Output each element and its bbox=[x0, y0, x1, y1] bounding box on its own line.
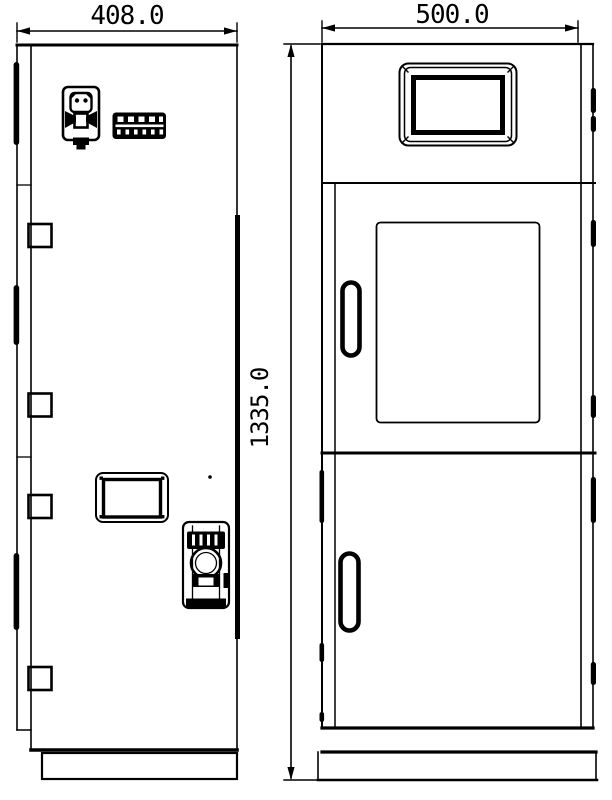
hinge-bump-icon bbox=[591, 88, 596, 113]
hinge-bump-icon bbox=[591, 116, 596, 132]
latch-icon bbox=[320, 470, 325, 523]
dimension-label-side-width: 408.0 bbox=[90, 1, 163, 31]
gasket-strip-icon bbox=[14, 62, 20, 145]
dimension-label-front-width: 500.0 bbox=[415, 0, 488, 30]
technical-drawing-canvas: 408.0 bbox=[0, 0, 612, 800]
terminal-block-icon bbox=[113, 113, 167, 140]
latch-icon bbox=[320, 712, 325, 722]
hinge-bump-icon bbox=[591, 220, 596, 247]
hinge-bump-icon bbox=[591, 477, 596, 523]
hinge-bump-icon bbox=[591, 395, 596, 418]
cabinet-drawing: 408.0 bbox=[0, 0, 612, 800]
latch-icon bbox=[320, 643, 325, 662]
door-edge-bar bbox=[235, 215, 240, 639]
hinge-bump-icon bbox=[591, 662, 596, 685]
gasket-strip-icon bbox=[14, 553, 20, 630]
rivet-dot bbox=[208, 475, 212, 479]
dimension-label-height: 1335.0 bbox=[246, 368, 274, 449]
gasket-strip-icon bbox=[14, 285, 20, 345]
